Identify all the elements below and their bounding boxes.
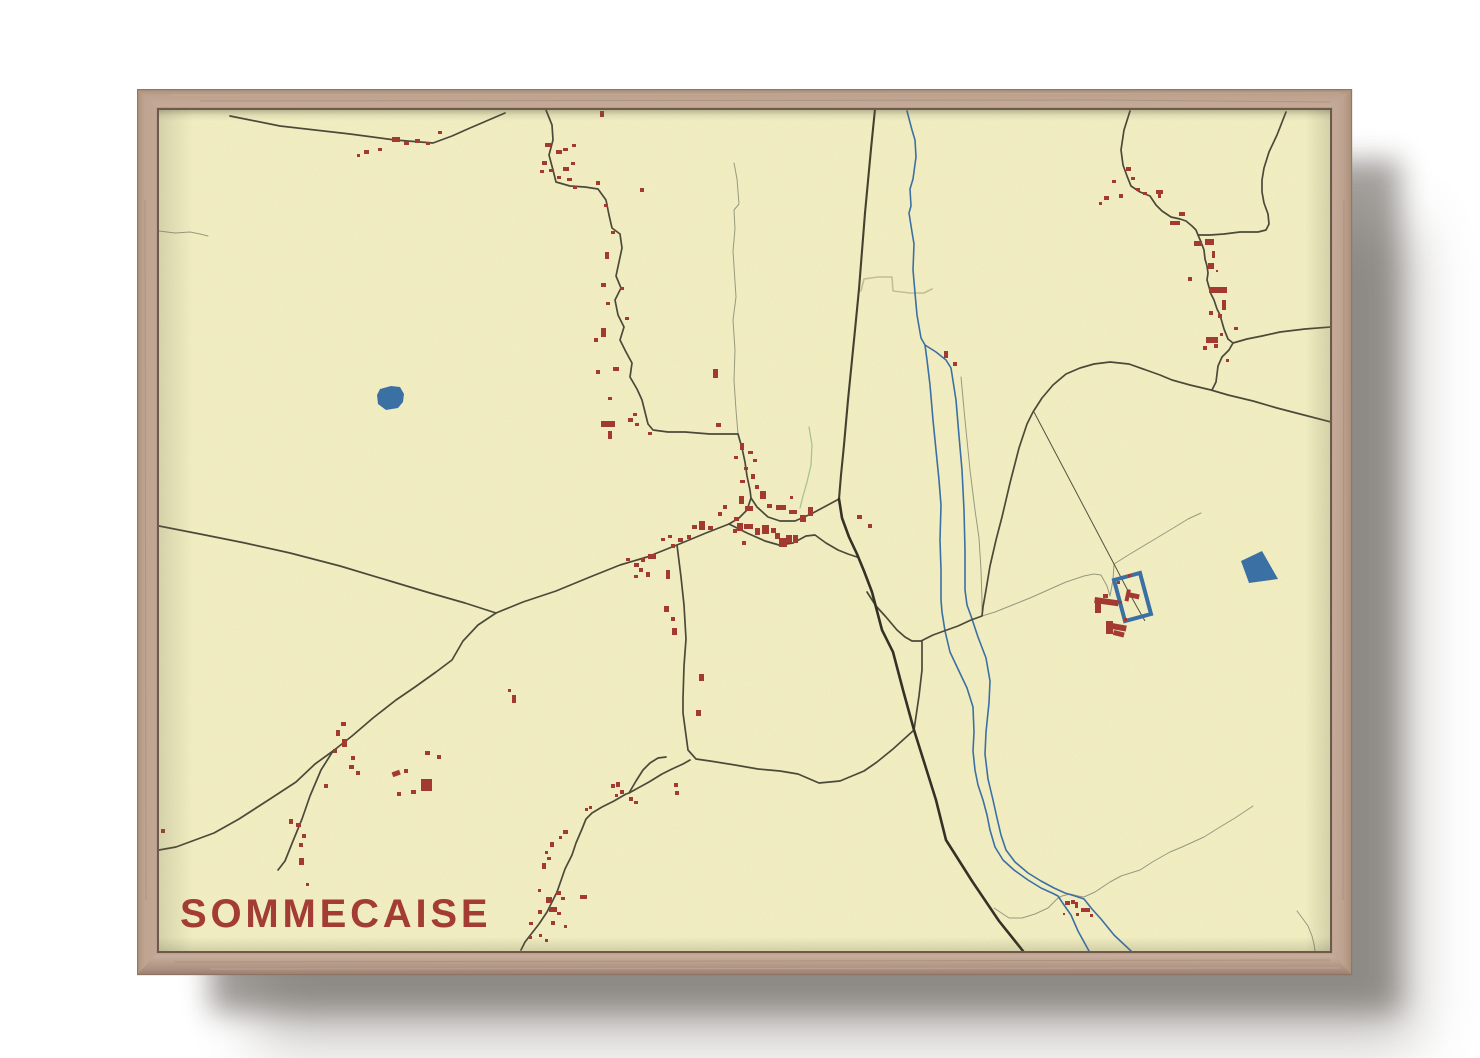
svg-text:SOMMECAISE: SOMMECAISE (180, 892, 491, 936)
